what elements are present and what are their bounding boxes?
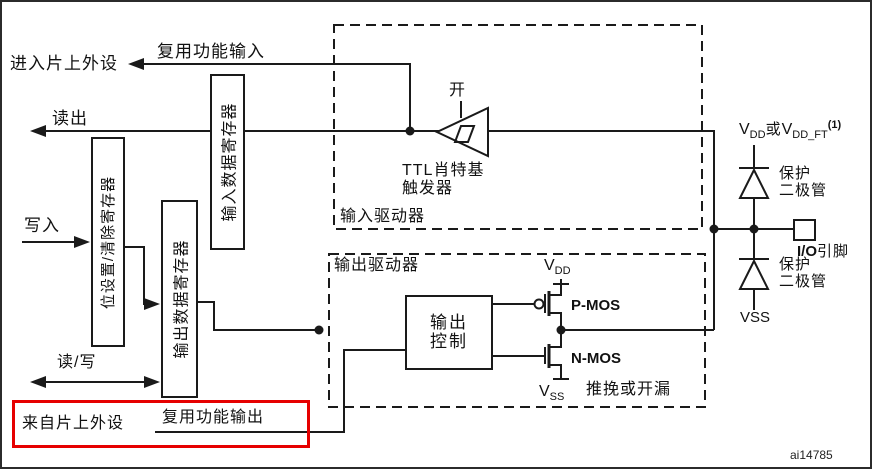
output-data-register-label: 输出数据寄存器 (168, 239, 192, 358)
read-write-label: 读/写 (57, 354, 96, 372)
schematic-wires-layer (2, 2, 870, 467)
io-pin-text: 引脚 (817, 243, 849, 260)
vss-sub: SS (550, 391, 565, 403)
vdd-or-v2-sub: DD_FT (792, 129, 827, 141)
arrowhead-rw-left (30, 376, 46, 388)
vdd-v: V (544, 257, 555, 274)
wire-bsrr-to-odr (125, 247, 146, 304)
vss-label: VSS (539, 383, 564, 404)
junction-dot (557, 326, 566, 335)
vdd-or-vddft-label: VDD或VDD_FT(1) (739, 119, 841, 142)
protection-diode-top-icon (740, 170, 768, 198)
output-control-line1: 输出 (430, 314, 468, 333)
input-data-register-label: 输入数据寄存器 (216, 102, 240, 221)
vdd-or-v1: V (739, 121, 750, 138)
write-label: 写入 (24, 216, 60, 236)
output-control-box: 输出 控制 (405, 295, 493, 370)
protection-diode-top-label: 保护 二极管 (779, 165, 827, 200)
wire-odr-tap (198, 302, 316, 330)
io-pin-io: I/O (797, 243, 817, 260)
junction-dot (406, 127, 415, 136)
output-data-register-box: 输出数据寄存器 (161, 200, 198, 398)
input-driver-label: 输入驱动器 (340, 208, 425, 226)
protection-diode-bottom-l2: 二极管 (779, 273, 827, 290)
af-output-highlight-box (12, 400, 310, 448)
bit-set-clear-register-label: 位设置/清除寄存器 (98, 175, 119, 308)
read-label: 读出 (52, 109, 88, 129)
junction-dot (750, 225, 759, 234)
output-driver-label: 输出驱动器 (334, 257, 419, 275)
vdd-label: VDD (544, 257, 571, 278)
bit-set-clear-register-box: 位设置/清除寄存器 (91, 137, 125, 347)
vss-v: V (539, 383, 550, 400)
arrowhead-af-input (128, 58, 144, 70)
protection-diode-bottom-icon (740, 261, 768, 289)
io-pin-label: I/O引脚 (797, 243, 849, 260)
junction-dot (710, 225, 719, 234)
nmos-label: N-MOS (571, 350, 621, 367)
af-input-label: 复用功能输入 (157, 42, 265, 62)
output-control-line2: 控制 (430, 333, 468, 352)
input-driver-boundary (334, 25, 702, 229)
figure-code: ai14785 (790, 449, 833, 463)
pmos-transistor-icon (535, 279, 570, 330)
vdd-or-v1-sub: DD (750, 129, 766, 141)
to-onchip-peripheral-label: 进入片上外设 (10, 54, 118, 74)
arrowhead-rw-right (144, 376, 160, 388)
vdd-or-note: (1) (828, 119, 841, 131)
schmitt-trigger-icon (437, 108, 488, 156)
pmos-label: P-MOS (571, 297, 620, 314)
input-data-register-box: 输入数据寄存器 (210, 74, 245, 250)
schmitt-trigger-label: TTL肖特基 触发器 (402, 162, 484, 199)
vss-rail-label: VSS (740, 309, 770, 326)
gpio-structure-diagram: 位设置/清除寄存器 输出数据寄存器 输入数据寄存器 输出 控制 进入片上外设 复… (0, 0, 872, 469)
arrowhead-bsrr-odr (144, 298, 160, 310)
junction-dot (315, 326, 324, 335)
schmitt-enable-label: 开 (449, 82, 466, 100)
vdd-or-text: 或 (766, 121, 782, 138)
schmitt-trigger-label-line2: 触发器 (402, 180, 453, 197)
schmitt-trigger-label-line1: TTL肖特基 (402, 162, 484, 179)
push-pull-open-drain-label: 推挽或开漏 (586, 381, 671, 399)
arrowhead-read (30, 125, 46, 137)
wire-af-input (140, 64, 410, 131)
protection-diode-bottom-label: 保护 二极管 (779, 256, 827, 291)
protection-diode-top-l2: 二极管 (779, 182, 827, 199)
vdd-or-v2: V (782, 121, 793, 138)
vdd-sub: DD (555, 265, 571, 277)
arrowhead-write (74, 236, 90, 248)
nmos-transistor-icon (545, 330, 569, 379)
protection-diode-top-l1: 保护 (779, 165, 811, 182)
io-pad-icon (794, 220, 815, 240)
